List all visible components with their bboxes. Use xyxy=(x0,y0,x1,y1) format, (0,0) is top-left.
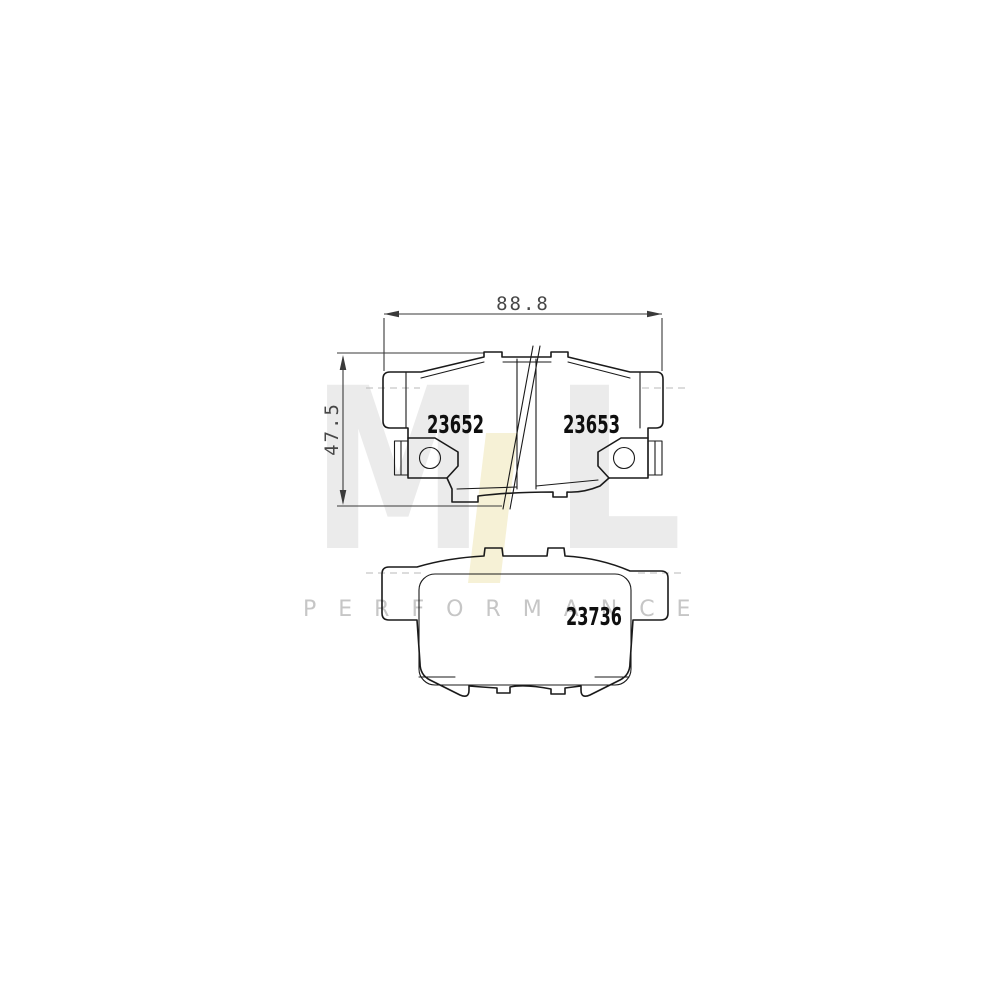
pad-pair-outline xyxy=(383,352,663,502)
right-guide-clip xyxy=(648,441,662,475)
arrow-right-icon xyxy=(647,311,662,318)
drawing-layer: 88.8 47.5 xyxy=(0,0,1000,1000)
dimension-height-label: 47.5 xyxy=(321,402,343,456)
right-ear-hole xyxy=(614,448,635,469)
part-number-bottom: 23736 xyxy=(566,602,622,631)
diagonal-pointer xyxy=(503,346,540,509)
dimension-width-label: 88.8 xyxy=(496,293,550,315)
arrow-left-icon xyxy=(384,311,399,318)
pad-backplate-view: 23736 xyxy=(366,548,686,696)
left-ear-detail xyxy=(408,438,458,478)
backplate-outline xyxy=(382,548,668,696)
part-number-top-right: 23653 xyxy=(563,410,620,439)
product-technical-drawing: M L PERFORMANCE 88.8 47.5 xyxy=(0,0,1000,1000)
left-guide-clip xyxy=(395,441,409,475)
right-ear-detail xyxy=(598,438,648,478)
pad-pair-top-view: 23652 23653 xyxy=(366,346,686,509)
dimension-width: 88.8 xyxy=(384,293,662,371)
arrow-down-icon xyxy=(340,490,347,505)
arrow-up-icon xyxy=(340,355,347,370)
left-ear-hole xyxy=(420,448,441,469)
part-number-top-left: 23652 xyxy=(427,410,484,439)
